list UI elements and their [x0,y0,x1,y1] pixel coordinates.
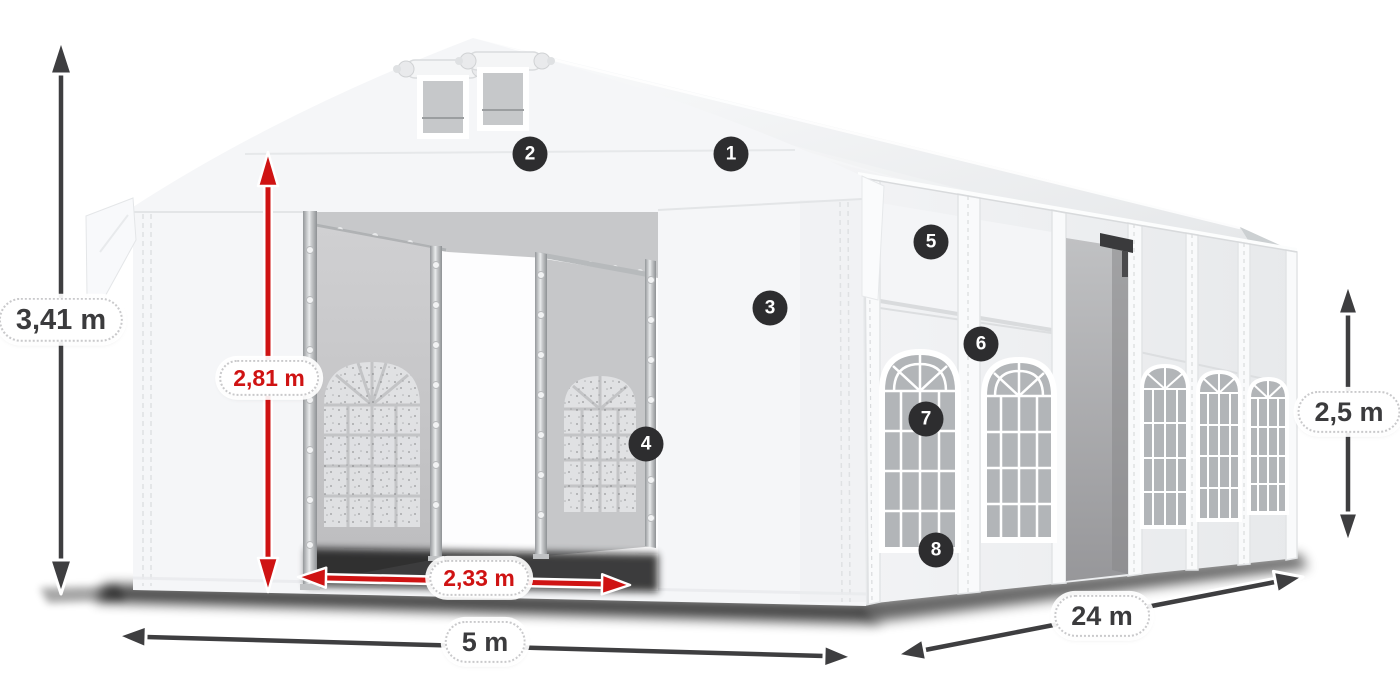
window-3 [1142,366,1188,527]
callout-badge-7: 7 [909,402,944,437]
dimension-label-entrance-width: 2,33 m [429,560,529,596]
dimension-label-front-width: 5 m [445,621,526,663]
window-5 [1249,379,1287,513]
side-door-opening [1066,233,1133,581]
window-1 [882,352,958,550]
callout-badge-4: 4 [629,427,664,462]
dimension-label-total-height: 3,41 m [0,298,123,342]
window-2 [984,360,1054,540]
callout-badge-2: 2 [513,137,548,172]
window-4 [1198,372,1240,520]
callout-badge-3: 3 [753,291,788,326]
callout-badge-5: 5 [914,225,949,260]
callout-badge-8: 8 [919,533,954,568]
entrance-opening [300,211,658,592]
callout-badge-6: 6 [964,327,999,362]
tent-illustration [0,0,1400,700]
dimension-label-side-length: 24 m [1054,595,1150,637]
interior-door-right [541,255,656,556]
tent-dimension-diagram: 3,41 m 2,81 m 2,33 m 5 m 24 m 2,5 m 1 2 … [0,0,1400,700]
dimension-label-wall-height: 2,5 m [1297,391,1400,433]
dimension-label-entrance-height: 2,81 m [219,360,319,396]
interior-door-left [308,224,442,583]
callout-badge-1: 1 [714,137,749,172]
